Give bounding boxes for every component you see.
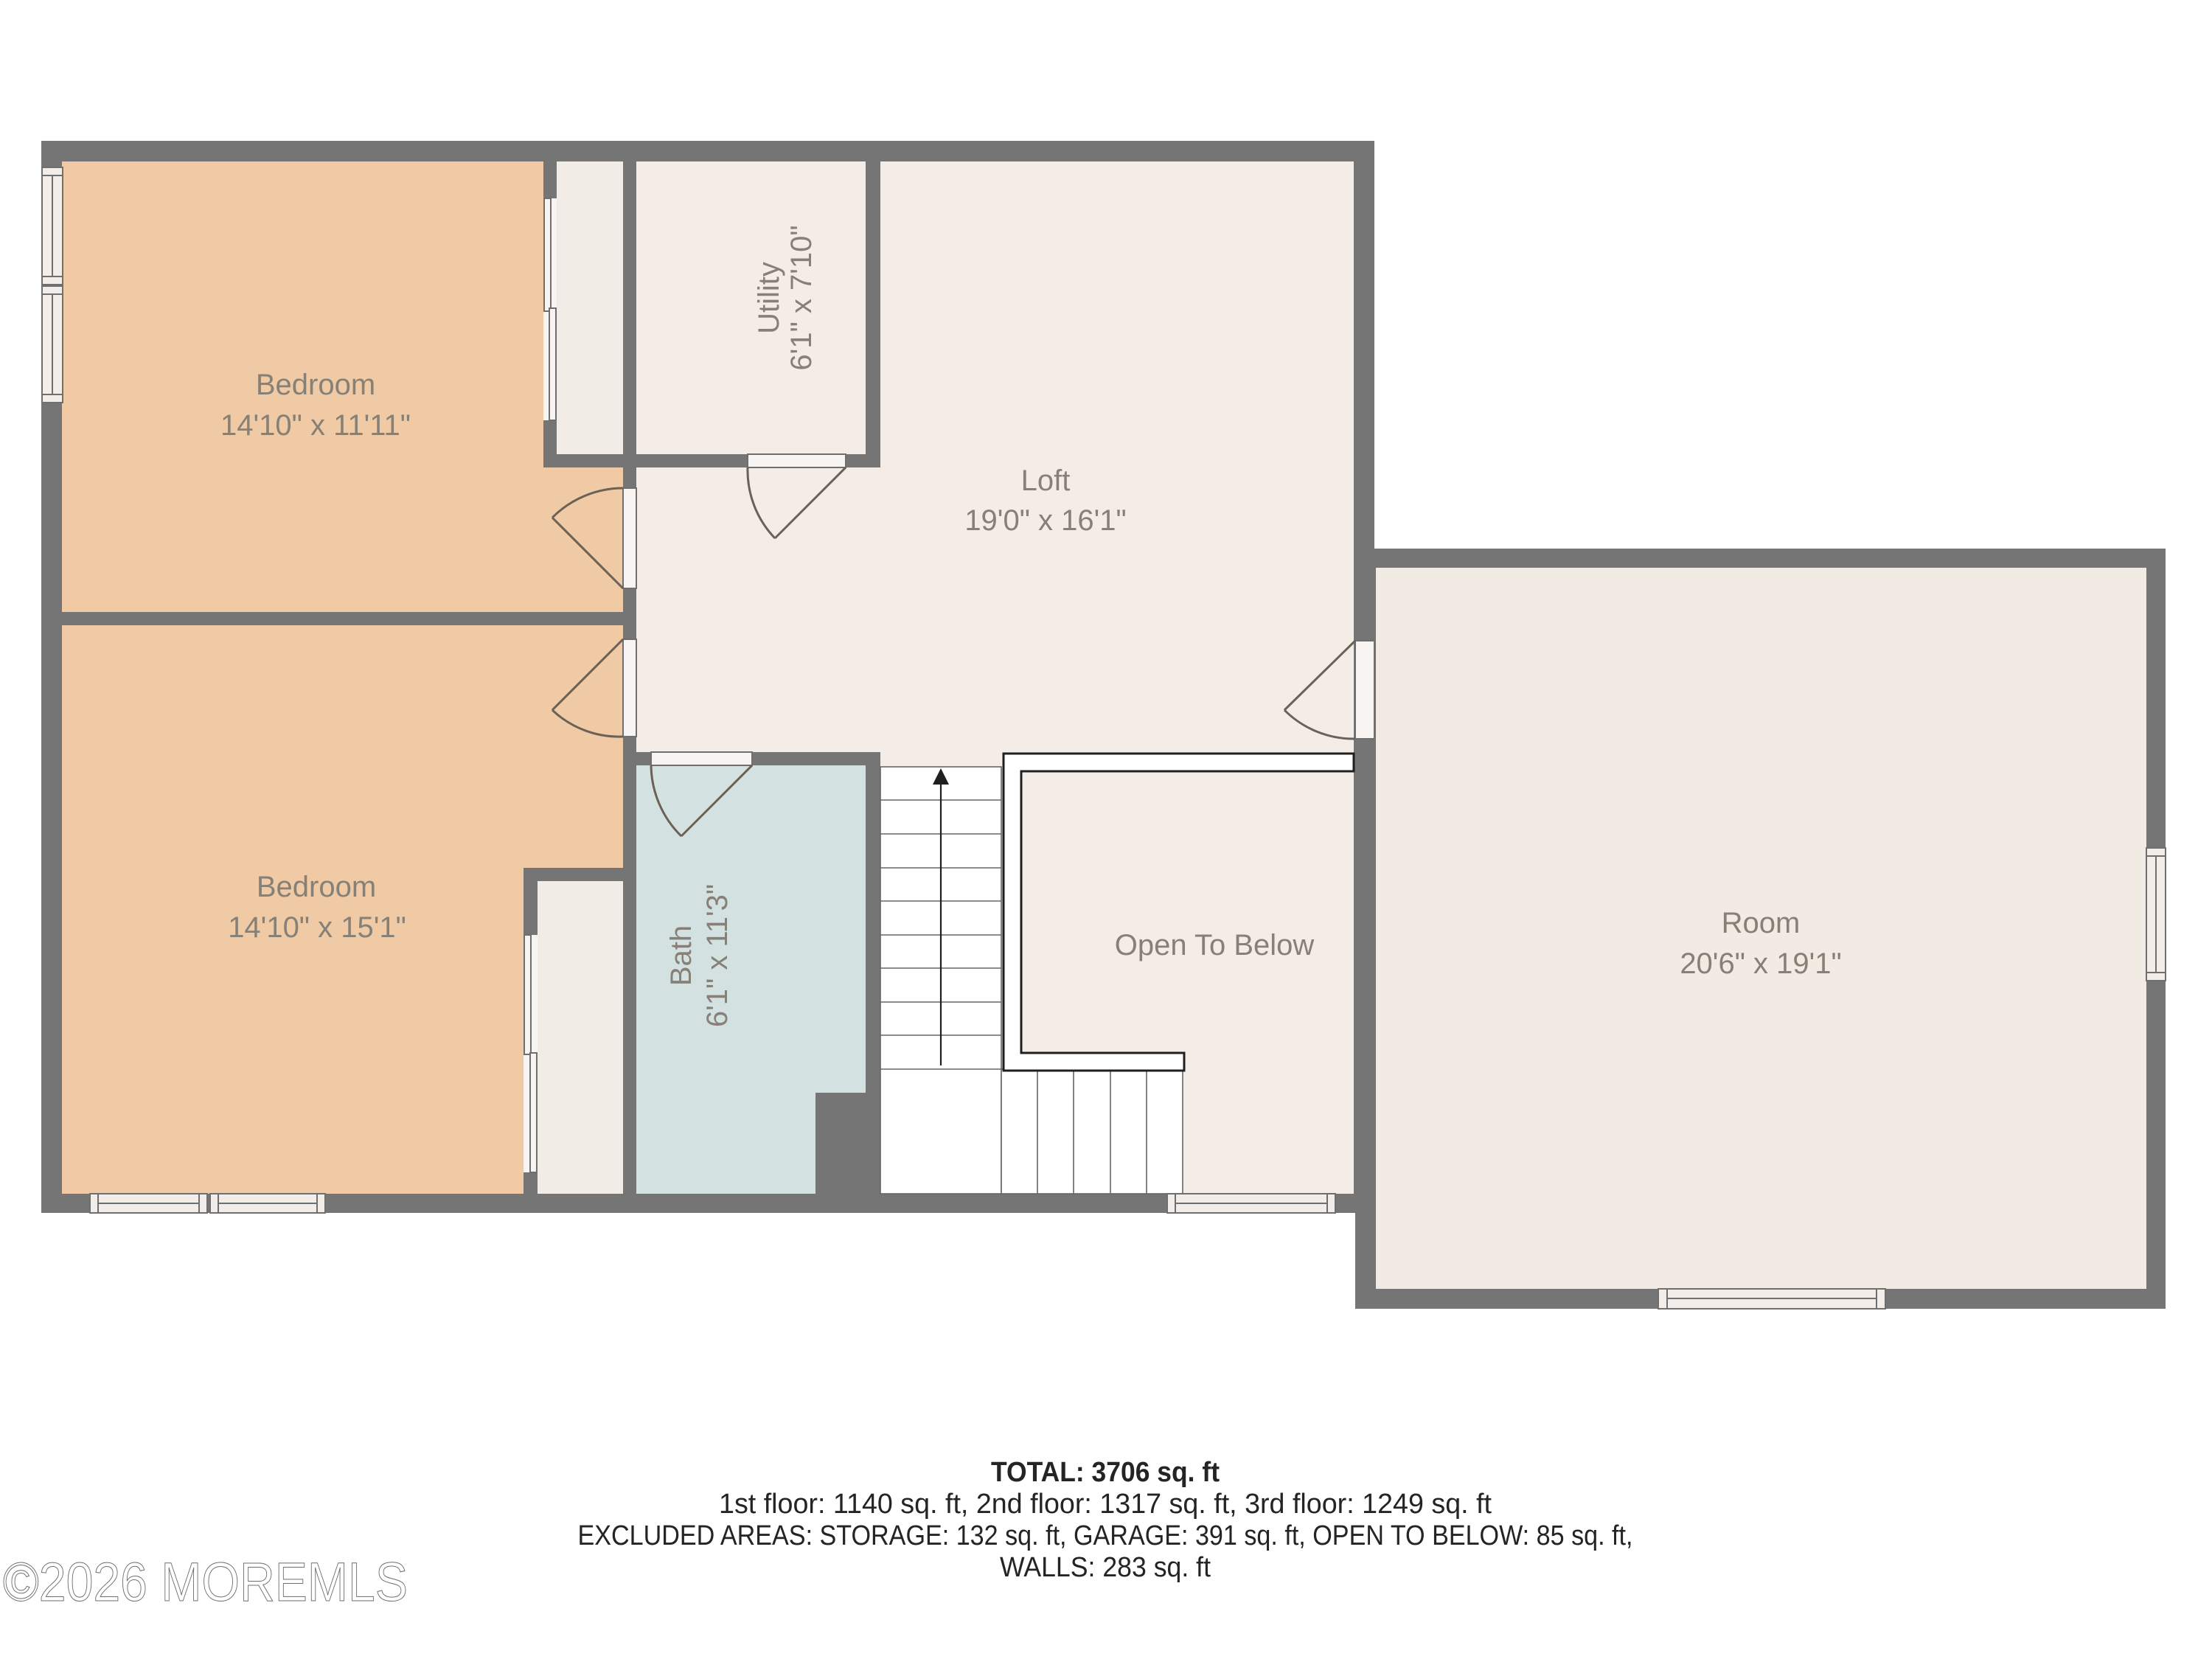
svg-text:19'0" x 16'1": 19'0" x 16'1" [964,504,1126,537]
svg-text:Loft: Loft [1021,465,1071,497]
svg-text:©2026 MOREMLS: ©2026 MOREMLS [3,1551,408,1613]
svg-text:20'6" x 19'1": 20'6" x 19'1" [1680,947,1841,980]
svg-text:Bath: Bath [665,925,698,986]
svg-text:14'10" x 15'1": 14'10" x 15'1" [228,911,406,944]
svg-text:Open To Below: Open To Below [1115,929,1315,961]
svg-text:EXCLUDED AREAS: STORAGE: 132 s: EXCLUDED AREAS: STORAGE: 132 sq. ft, GAR… [578,1520,1633,1551]
svg-text:6'1" x 7'10": 6'1" x 7'10" [785,225,818,370]
svg-text:TOTAL: 3706 sq. ft: TOTAL: 3706 sq. ft [991,1457,1220,1488]
svg-text:Room: Room [1722,907,1801,939]
svg-text:14'10" x 11'11": 14'10" x 11'11" [220,409,411,442]
svg-text:1st floor: 1140 sq. ft, 2nd fl: 1st floor: 1140 sq. ft, 2nd floor: 1317 … [719,1489,1492,1520]
svg-text:Bedroom: Bedroom [256,369,375,401]
svg-text:Bedroom: Bedroom [257,871,376,903]
svg-text:6'1" x 11'3": 6'1" x 11'3" [701,884,734,1027]
svg-text:Utility: Utility [753,262,785,334]
svg-text:WALLS: 283 sq. ft: WALLS: 283 sq. ft [1000,1552,1211,1583]
